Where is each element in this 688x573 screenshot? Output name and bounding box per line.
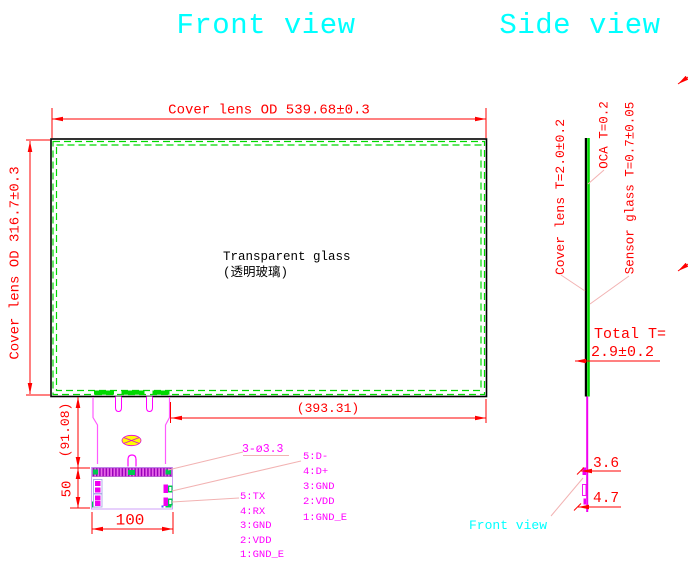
leader-cover-lens: [561, 275, 585, 291]
front-view-title: Front view: [176, 11, 355, 41]
sensor-glass-section: [587, 138, 590, 397]
cover-lens-thickness-label: Cover lens T=2.0±0.2: [554, 119, 568, 275]
edge-tick-bottom: [678, 264, 688, 271]
dim-fpc-label: 3.6: [593, 457, 619, 472]
fpc-tail: [93, 391, 170, 467]
usb-pin-label: 1:GND_E: [303, 513, 347, 524]
dim-inner-width-label: (393.31): [297, 402, 359, 416]
board-component: [164, 485, 169, 494]
glass-label-cn: (透明玻璃): [223, 267, 288, 280]
glass-label-en: Transparent glass: [223, 251, 351, 264]
fpc-bond-pad: [153, 391, 170, 395]
fpc-edge-right: [166, 397, 170, 464]
fpc-bond-pad: [122, 391, 145, 395]
oca-thickness-label: OCA T=0.2: [598, 101, 611, 169]
usb-pin-label: 2:VDD: [303, 497, 335, 508]
connector-section: [583, 485, 587, 496]
mounting-slot: [147, 397, 153, 412]
dim-height-label: Cover lens OD 316.7±0.3: [9, 166, 24, 359]
uart-pin-label: 3:GND: [240, 521, 272, 532]
total-thickness-label: Total T=: [594, 327, 666, 343]
dim-connector-label: 4.7: [593, 492, 619, 507]
front-view-pointer-label: Front view: [469, 519, 547, 533]
side-view-stack: [583, 138, 590, 512]
drawing-linework: [0, 0, 688, 573]
usb-pin-label: 3:GND: [303, 482, 335, 493]
uart-pin-label: 4:RX: [240, 507, 265, 518]
cover-lens-section: [585, 138, 587, 397]
usb-pin-label: 4:D+: [303, 467, 328, 478]
fpc-section: [586, 397, 588, 513]
connector-board: [92, 468, 173, 510]
fpc-edge-left: [93, 397, 98, 464]
connector-section: [584, 499, 587, 505]
leader-oca: [588, 170, 604, 184]
board-component: [164, 498, 169, 507]
leader-uart-pins: [172, 498, 239, 502]
hole-callout-label: 3-ø3.3: [242, 444, 283, 456]
sensor-glass-thickness-label: Sensor glass T=0.7±0.05: [624, 102, 637, 275]
usb-pin-label: 5:D-: [303, 452, 328, 463]
total-thickness-value: 2.9±0.2: [591, 345, 654, 361]
fpc-arch-hole: [128, 455, 136, 467]
uart-pin-label: 2:VDD: [240, 536, 272, 547]
uart-pin-label: 5:TX: [240, 492, 265, 503]
leader-sensor-glass: [590, 276, 629, 304]
leader-front-view: [551, 478, 583, 516]
dim-width-label: Cover lens OD 539.68±0.3: [168, 104, 370, 119]
dim-board-height-label: 50: [61, 481, 76, 498]
dim-tail-height-label: (91.08): [59, 403, 73, 458]
edge-tick-top: [678, 77, 688, 84]
dim-board-width-label: 100: [116, 513, 145, 530]
fpc-bond-pad: [94, 391, 114, 395]
mounting-slot: [116, 397, 122, 412]
leader-usb-pins: [172, 461, 301, 491]
side-view-title: Side view: [499, 11, 660, 41]
drawing-canvas: Front view Side view Cover lens OD 539.6…: [0, 0, 688, 573]
uart-pin-label: 1:GND_E: [240, 550, 284, 561]
